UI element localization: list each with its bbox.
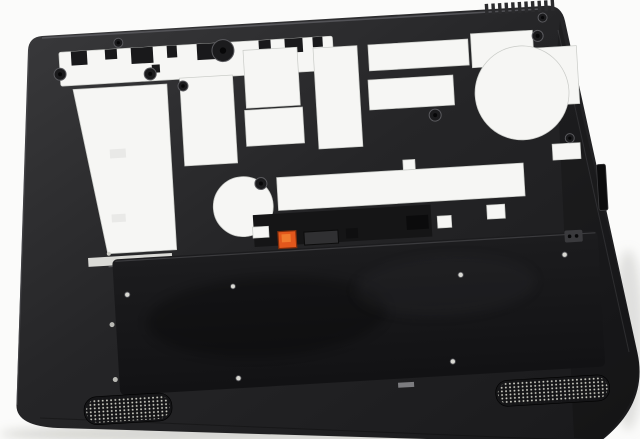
vent-fin xyxy=(485,4,489,15)
frame-cutout xyxy=(180,75,238,166)
small-cutout xyxy=(487,204,506,219)
screw-hole xyxy=(230,284,235,289)
screw-hole xyxy=(458,272,463,277)
screw-hole xyxy=(125,292,130,297)
small-cutout xyxy=(552,143,581,161)
vent-fin xyxy=(537,1,541,12)
speaker-grille-left xyxy=(83,392,173,425)
frame-cutout xyxy=(243,47,300,108)
product-photo: Interior view of a black laptop bottom b… xyxy=(0,0,640,439)
bay-boss-plate xyxy=(564,230,583,243)
frame-cutout xyxy=(245,107,305,146)
screw-hole xyxy=(450,359,455,364)
connector-block xyxy=(346,228,359,239)
small-cutout xyxy=(252,226,269,238)
small-cutout xyxy=(403,159,416,170)
heatsink-strip-cutout xyxy=(368,39,469,71)
connector-block xyxy=(304,230,339,245)
rim-dash xyxy=(398,382,414,388)
frame-cutout xyxy=(313,46,363,149)
rib-tab xyxy=(312,37,323,48)
rib-tab xyxy=(105,49,118,60)
vent-fin xyxy=(544,0,548,11)
rib-tab xyxy=(71,51,88,66)
vent-fin xyxy=(498,3,502,14)
vent-fin xyxy=(531,1,535,12)
grille-dots xyxy=(85,394,170,423)
screw-hole xyxy=(562,252,567,257)
small-cutout xyxy=(437,215,452,228)
vent-fin xyxy=(524,1,528,12)
connector-block xyxy=(406,215,429,230)
rim-cutout xyxy=(111,214,125,223)
rib-tab xyxy=(167,45,178,58)
laptop-bottom-case-photo xyxy=(0,0,640,439)
rim-cutout xyxy=(110,149,127,159)
vent-fin xyxy=(518,2,522,13)
rib-tab xyxy=(131,47,154,64)
vent-fin xyxy=(491,3,495,14)
sim-ejector-highlight xyxy=(281,234,290,243)
screw-hole xyxy=(236,375,241,380)
vent-fin xyxy=(504,3,508,14)
vent-fin xyxy=(511,2,515,13)
vent-fin xyxy=(551,0,555,11)
heatsink-strip-cutout xyxy=(368,75,455,110)
